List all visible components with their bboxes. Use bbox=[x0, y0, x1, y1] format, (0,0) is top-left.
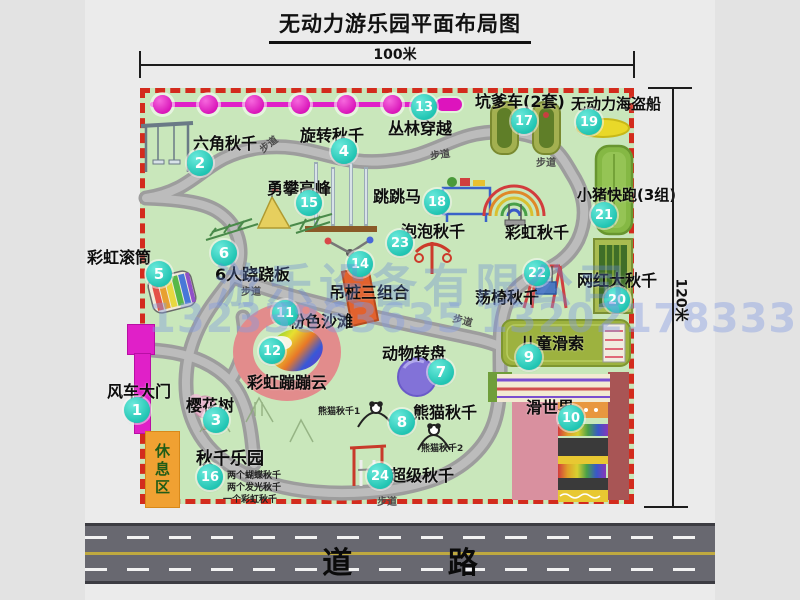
rest-area-label: 休息区 bbox=[152, 443, 173, 497]
attraction-badge-18: 18 bbox=[424, 189, 450, 215]
zipline-end-platform bbox=[436, 98, 462, 111]
attraction-badge-2: 2 bbox=[187, 150, 213, 176]
page-title-text: 无动力游乐园平面布局图 bbox=[269, 8, 531, 44]
attraction-badge-1: 1 bbox=[124, 397, 150, 423]
attraction-badge-19: 19 bbox=[576, 109, 602, 135]
height-dimension-label: 120米 bbox=[672, 278, 692, 321]
path-label: 步道 bbox=[429, 145, 451, 163]
attraction-badge-16: 16 bbox=[197, 464, 223, 490]
attraction-badge-17: 17 bbox=[511, 108, 537, 134]
attraction-badge-4: 4 bbox=[331, 138, 357, 164]
zipline-dot bbox=[153, 95, 172, 114]
attraction-label-24: 超级秋千 bbox=[390, 462, 454, 486]
right-dimension-tick-bottom bbox=[644, 506, 688, 508]
top-dimension-line bbox=[140, 64, 634, 66]
watermark-phone: 13233863635 13202178333 bbox=[148, 296, 797, 342]
rest-area: 休息区 bbox=[145, 431, 180, 508]
rainbow-swing-label: 彩虹秋千 bbox=[505, 219, 569, 243]
zipline-dot bbox=[199, 95, 218, 114]
panda-swing-note-1: 熊猫秋千1 bbox=[318, 404, 360, 417]
attraction-badge-8: 8 bbox=[389, 409, 415, 435]
attraction-badge-24: 24 bbox=[367, 463, 393, 489]
attraction-label-18: 跳跳马 bbox=[373, 183, 421, 207]
zipline-dot bbox=[291, 95, 310, 114]
park-layout-map: 无动力游乐园平面布局图 100米 120米 bbox=[0, 0, 800, 600]
top-dimension-tick-left bbox=[139, 51, 141, 78]
page-title: 无动力游乐园平面布局图 bbox=[0, 8, 800, 44]
panda-swing-note-2: 熊猫秋千2 bbox=[421, 441, 463, 454]
attraction-badge-10: 10 bbox=[558, 405, 584, 431]
zipline-dot bbox=[337, 95, 356, 114]
road: 道 路 bbox=[85, 523, 715, 584]
path-label: 步道 bbox=[377, 493, 397, 508]
path-label: 步道 bbox=[536, 154, 556, 169]
zipline-dot bbox=[245, 95, 264, 114]
attraction-label-5: 彩虹滚筒 bbox=[87, 244, 151, 268]
attraction-badge-13: 13 bbox=[411, 94, 437, 120]
attraction-badge-9: 9 bbox=[516, 344, 542, 370]
swing-park-note-3: 一个彩虹秋千 bbox=[223, 492, 277, 505]
top-dimension-tick-right bbox=[633, 51, 635, 78]
attraction-badge-21: 21 bbox=[591, 202, 617, 228]
road-label: 道 路 bbox=[85, 538, 715, 582]
attraction-label-12: 彩虹蹦蹦云 bbox=[247, 369, 327, 393]
width-dimension-label: 100米 bbox=[355, 44, 435, 64]
right-dimension-tick-top bbox=[648, 87, 692, 89]
attraction-badge-5: 5 bbox=[146, 261, 172, 287]
attraction-badge-3: 3 bbox=[203, 407, 229, 433]
attraction-label-8: 熊猫秋千 bbox=[413, 399, 477, 423]
attraction-badge-7: 7 bbox=[428, 359, 454, 385]
attraction-label-21: 小猪快跑(3组) bbox=[577, 184, 676, 205]
attraction-badge-15: 15 bbox=[296, 190, 322, 216]
zipline-dot bbox=[383, 95, 402, 114]
